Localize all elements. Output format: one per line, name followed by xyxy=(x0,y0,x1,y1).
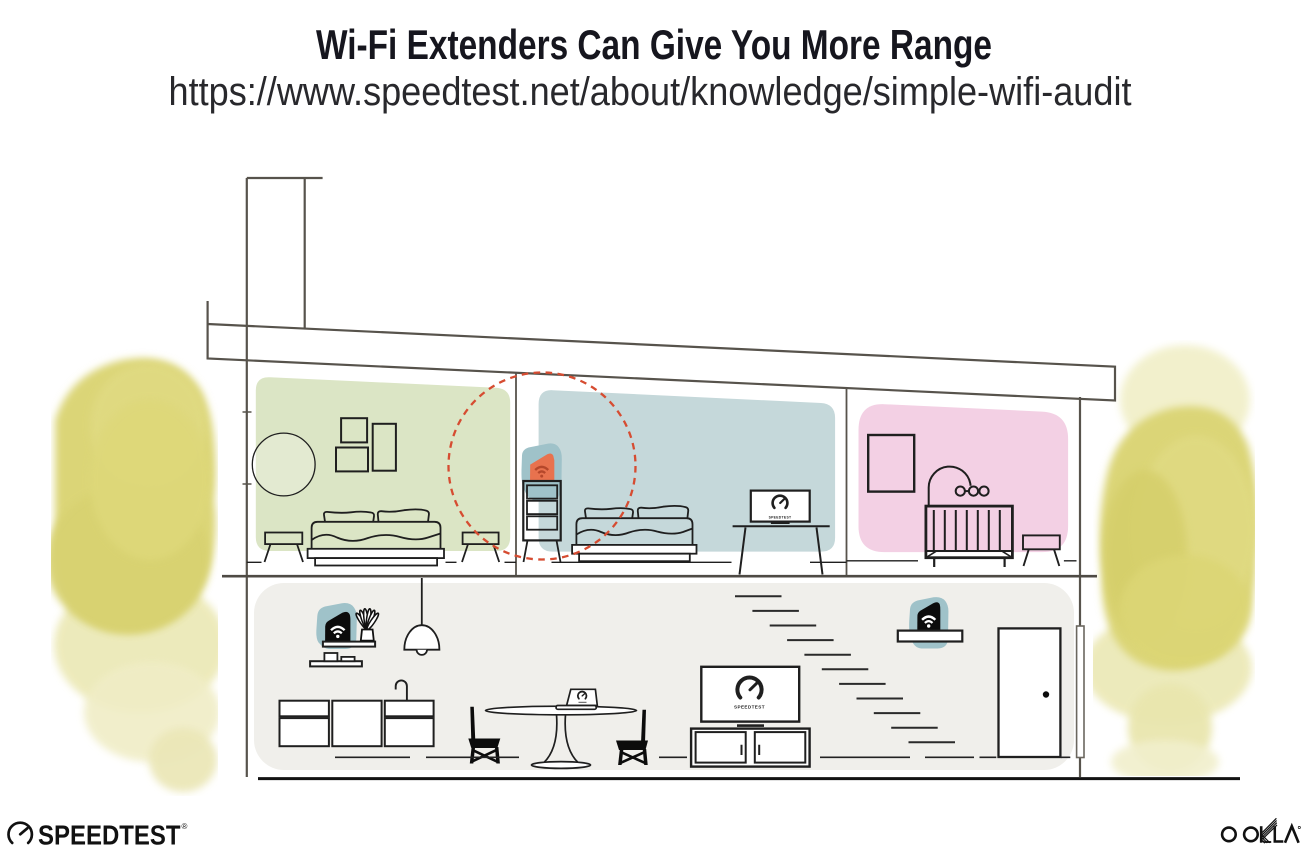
svg-text:SPEEDTEST: SPEEDTEST xyxy=(769,515,792,519)
svg-text:https://www.speedtest.net/abou: https://www.speedtest.net/about/knowledg… xyxy=(169,70,1132,114)
svg-text:®: ® xyxy=(182,822,188,831)
svg-text:Wi-Fi Extenders Can Give You M: Wi-Fi Extenders Can Give You More Range xyxy=(316,21,992,68)
svg-text:SPEEDTEST: SPEEDTEST xyxy=(38,820,181,851)
svg-text:SPEEDTEST: SPEEDTEST xyxy=(734,705,765,710)
